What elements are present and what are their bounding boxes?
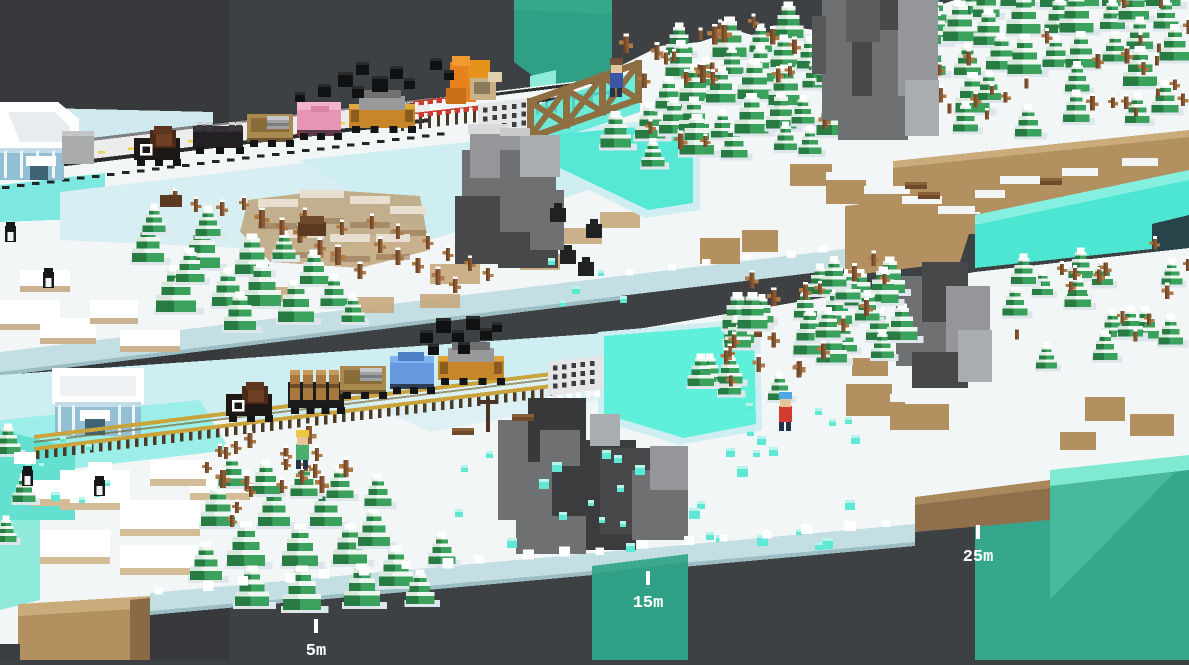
svg-text:5m: 5m (306, 642, 326, 660)
svg-text:15m: 15m (633, 594, 664, 613)
svg-text:25m: 25m (963, 548, 994, 567)
